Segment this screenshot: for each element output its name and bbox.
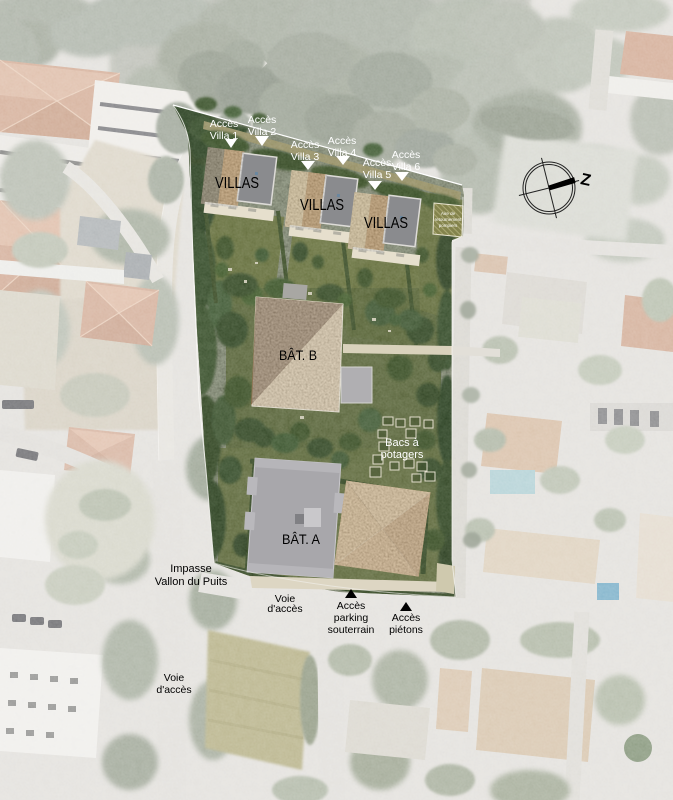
svg-text:VILLAS: VILLAS	[300, 197, 344, 214]
svg-text:piétons: piétons	[389, 624, 423, 636]
svg-text:Voie: Voie	[164, 672, 185, 684]
svg-text:Villa 1: Villa 1	[210, 130, 239, 142]
svg-text:Bacs à: Bacs à	[385, 437, 420, 449]
svg-text:Impasse: Impasse	[170, 563, 212, 575]
svg-text:retournement: retournement	[435, 217, 463, 222]
svg-text:Villa 5: Villa 5	[363, 169, 392, 181]
svg-text:parking: parking	[334, 612, 369, 624]
svg-text:Aire de: Aire de	[441, 211, 456, 216]
svg-text:Villa 3: Villa 3	[291, 151, 320, 163]
svg-text:Accès: Accès	[337, 600, 366, 612]
svg-text:d'accès: d'accès	[267, 603, 302, 615]
svg-text:Accès: Accès	[328, 135, 357, 147]
svg-text:Accès: Accès	[392, 149, 421, 161]
svg-text:Accès: Accès	[210, 118, 239, 130]
svg-text:VILLAS: VILLAS	[215, 175, 259, 192]
svg-text:souterrain: souterrain	[328, 624, 375, 636]
svg-text:Accès: Accès	[248, 114, 277, 126]
svg-text:BÂT. A: BÂT. A	[282, 531, 321, 547]
svg-text:potagers: potagers	[381, 449, 424, 461]
svg-text:pompiers: pompiers	[439, 223, 458, 228]
svg-text:Accès: Accès	[392, 612, 421, 624]
svg-text:d'accès: d'accès	[156, 684, 191, 696]
svg-text:Accès: Accès	[291, 139, 320, 151]
svg-text:VILLAS: VILLAS	[364, 215, 408, 232]
svg-text:Vallon du Puits: Vallon du Puits	[155, 576, 228, 588]
svg-text:BÂT. B: BÂT. B	[279, 347, 317, 363]
